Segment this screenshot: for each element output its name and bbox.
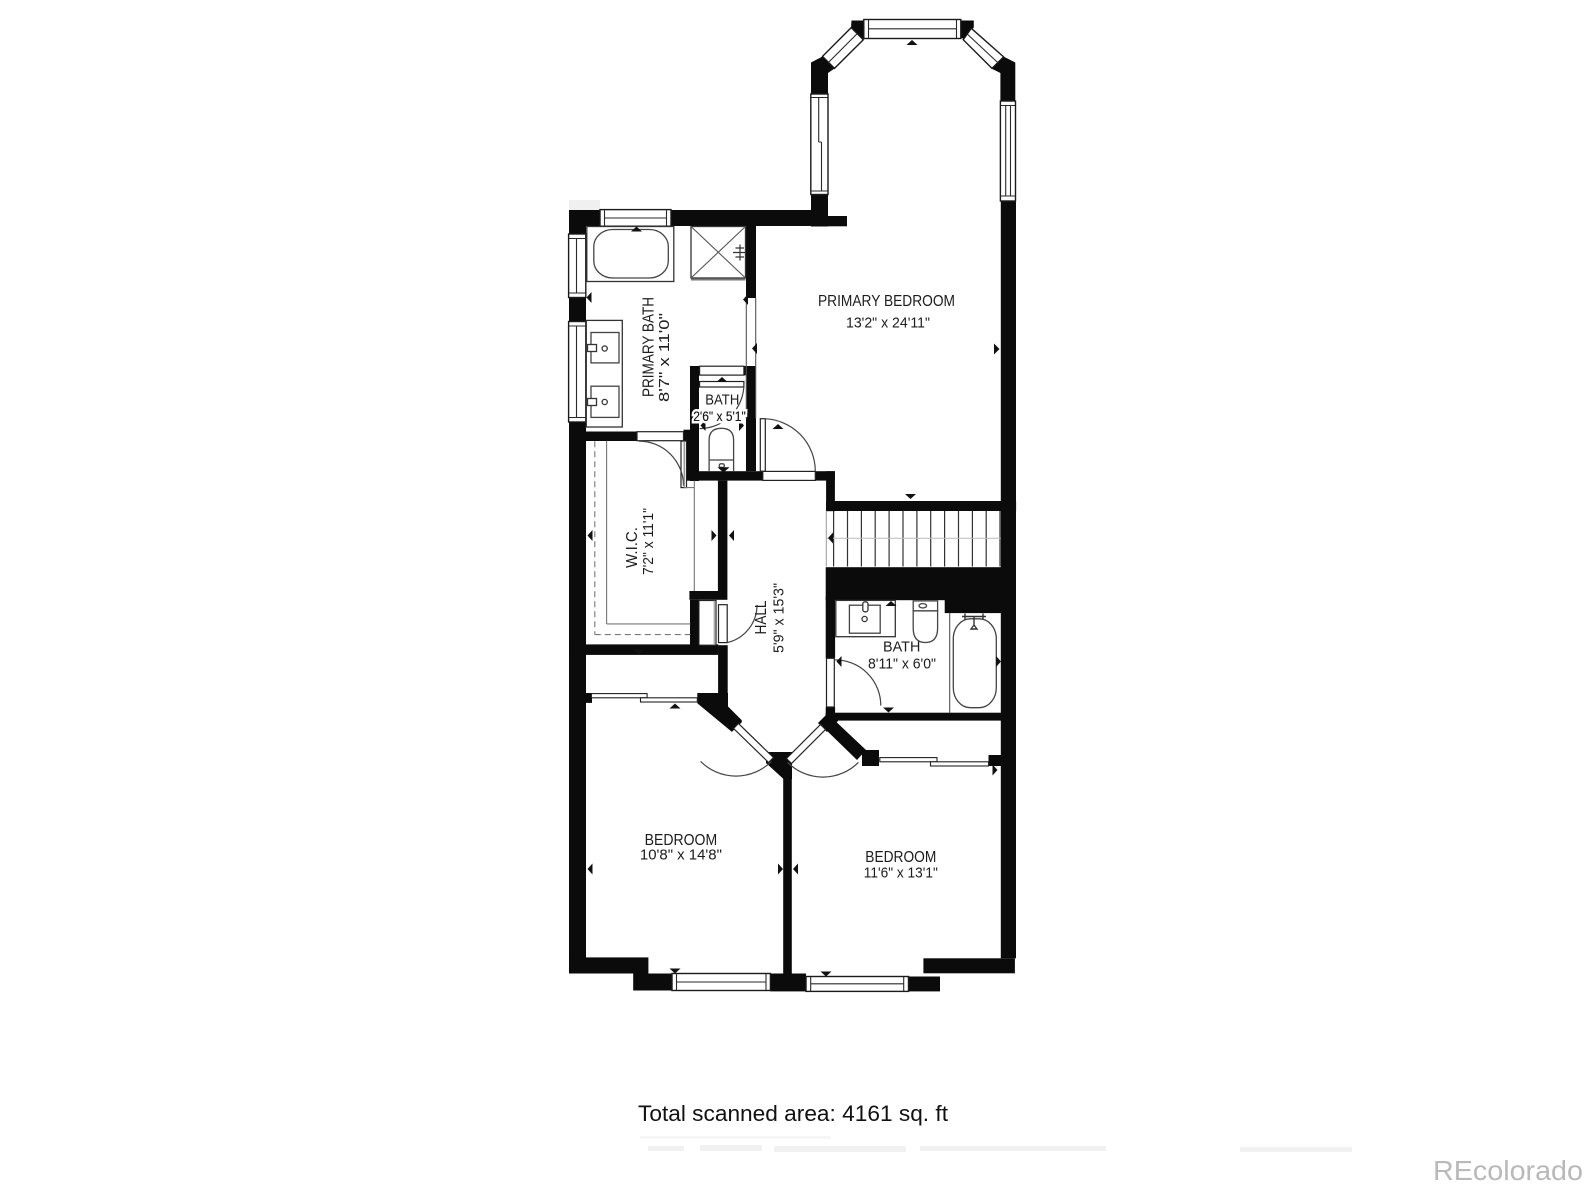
svg-text:PRIMARY BATH: PRIMARY BATH bbox=[641, 297, 658, 397]
svg-text:BEDROOM: BEDROOM bbox=[865, 849, 936, 866]
svg-text:BATH: BATH bbox=[883, 639, 920, 656]
svg-text:Total scanned area: 4161 sq. f: Total scanned area: 4161 sq. ft bbox=[638, 1101, 949, 1126]
svg-text:11'6" x 13'1": 11'6" x 13'1" bbox=[864, 865, 938, 882]
svg-text:W.I.C.: W.I.C. bbox=[624, 527, 641, 568]
svg-text:10'8" x 14'8": 10'8" x 14'8" bbox=[640, 847, 722, 864]
svg-text:HALL: HALL bbox=[753, 600, 770, 634]
svg-text:8'7" x 11'0": 8'7" x 11'0" bbox=[657, 313, 673, 402]
svg-text:BATH: BATH bbox=[705, 393, 739, 409]
svg-text:5'9" x 15'3": 5'9" x 15'3" bbox=[772, 583, 788, 653]
svg-text:PRIMARY BEDROOM: PRIMARY BEDROOM bbox=[818, 293, 955, 310]
svg-text:8'11" x 6'0": 8'11" x 6'0" bbox=[868, 656, 936, 673]
svg-text:REcolorado: REcolorado bbox=[1433, 1155, 1583, 1186]
svg-text:13'2" x 24'11": 13'2" x 24'11" bbox=[846, 315, 930, 332]
svg-text:7'2" x 11'1": 7'2" x 11'1" bbox=[641, 508, 657, 575]
svg-text:2'6" x 5'1": 2'6" x 5'1" bbox=[693, 408, 746, 424]
